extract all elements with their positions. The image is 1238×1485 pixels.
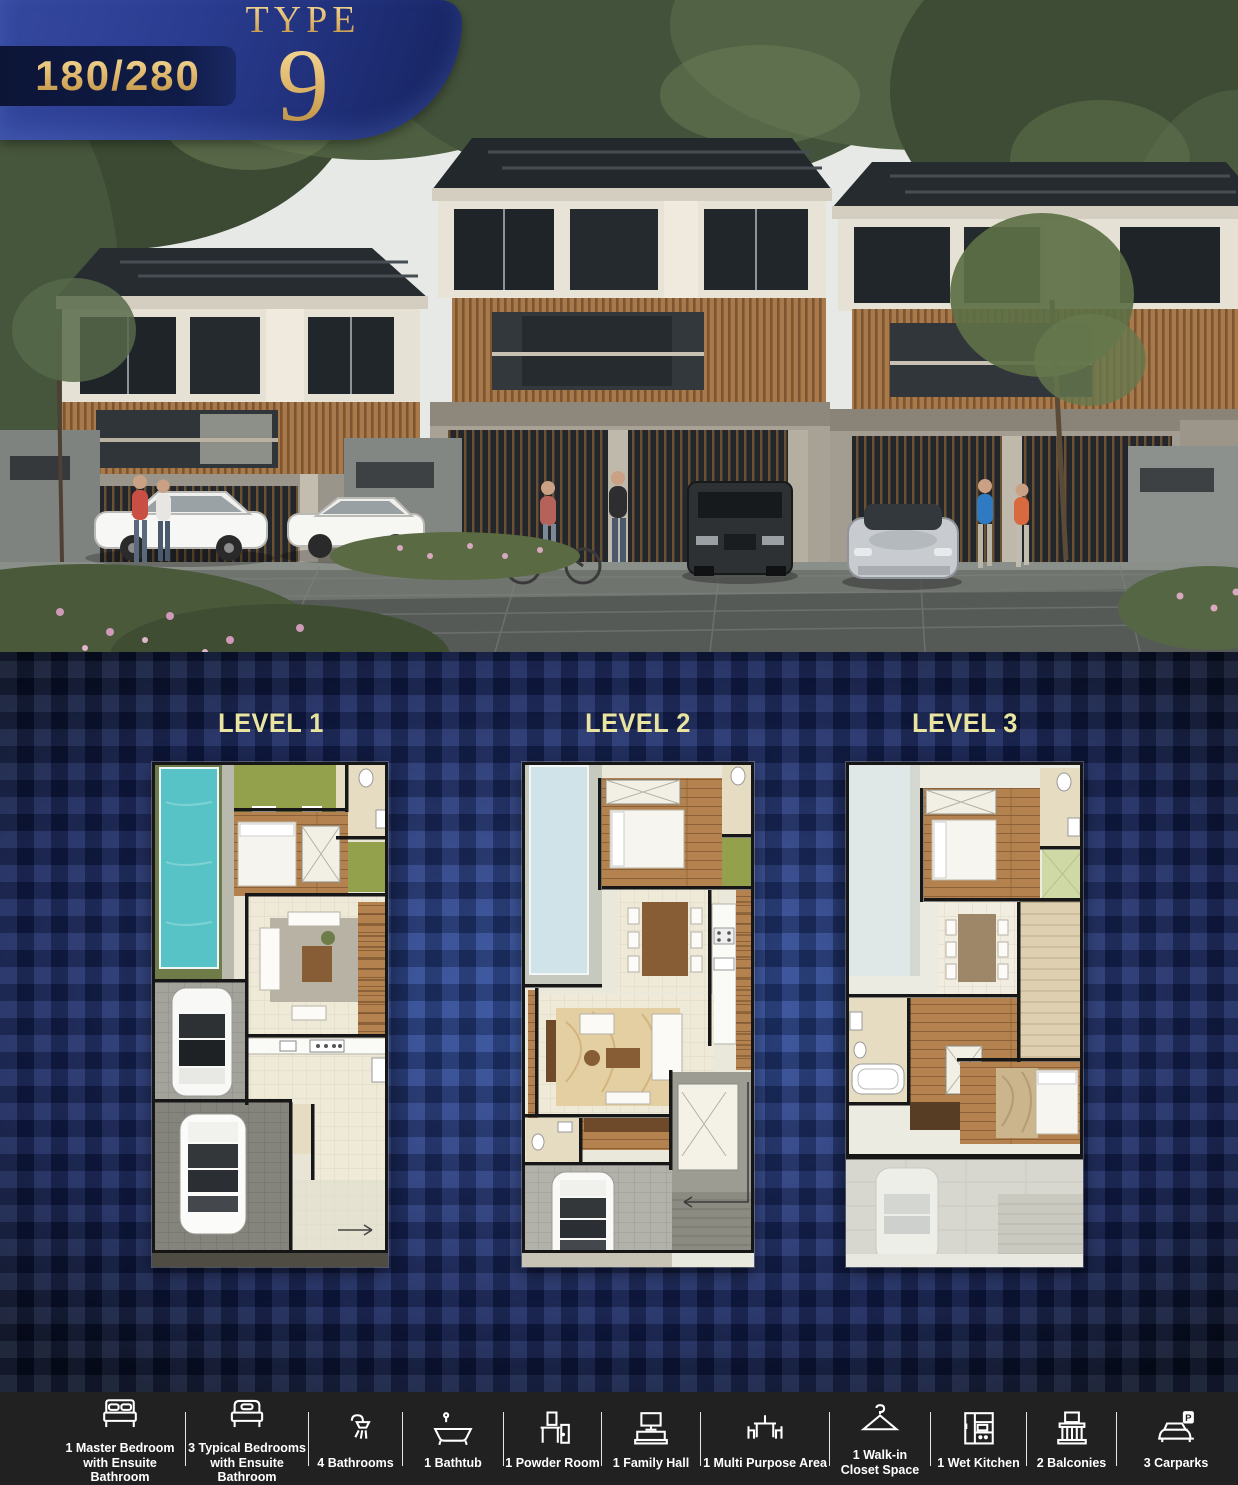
legend-label: 1 Family Hall [613, 1456, 689, 1471]
type-number: 9 [238, 38, 368, 134]
area-ratio-text: 180/280 [35, 52, 201, 100]
legend-balconies: 2 Balconies [1027, 1407, 1116, 1471]
legend-label: 3 Carparks [1144, 1456, 1209, 1471]
ghost-car [876, 1168, 938, 1262]
legend-wet-kitchen: 1 Wet Kitchen [931, 1407, 1026, 1471]
master-bed [1036, 1070, 1078, 1134]
legend-master-bedroom: 1 Master Bedroom with Ensuite Bathroom [55, 1392, 185, 1485]
floor-plan-level-1 [152, 762, 388, 1267]
legend-label: 1 Walk-in Closet Space [832, 1448, 928, 1478]
legend-footer: 1 Master Bedroom with Ensuite Bathroom 3… [0, 1392, 1238, 1485]
legend-walk-in-closet: 1 Walk-in Closet Space [830, 1399, 930, 1478]
legend-typical-bedrooms: 3 Typical Bedrooms with Ensuite Bathroom [186, 1392, 308, 1485]
single-bed-icon [225, 1392, 269, 1436]
pool [160, 768, 218, 968]
legend-label: 1 Master Bedroom with Ensuite Bathroom [57, 1441, 183, 1485]
legend-family-hall: 1 Family Hall [602, 1407, 700, 1471]
living-room [546, 1008, 682, 1106]
carport-car [172, 988, 232, 1096]
dining-table [628, 902, 702, 976]
type-badge: 180/280 TYPE 9 [0, 0, 462, 140]
floor-plans-section: LEVEL 1 LEVEL 2 LEVEL 3 [0, 652, 1238, 1392]
pool [530, 766, 588, 974]
legend-label: 1 Powder Room [505, 1456, 599, 1471]
legend-label: 1 Multi Purpose Area [703, 1456, 827, 1471]
floor-plan-level-2 [522, 762, 754, 1267]
brochure-page: 180/280 TYPE 9 LEVEL 1 LEVEL 2 LEVEL 3 [0, 0, 1238, 1485]
legend-carparks: P 3 Carparks [1117, 1407, 1235, 1471]
legend-powder-room: 1 Powder Room [504, 1407, 601, 1471]
legend-bathtub: 1 Bathtub [403, 1407, 503, 1471]
legend-label: 1 Bathtub [424, 1456, 482, 1471]
legend-label: 4 Bathrooms [317, 1456, 393, 1471]
legend-multi-purpose: 1 Multi Purpose Area [701, 1407, 829, 1471]
wet-kitchen-icon [957, 1407, 1001, 1451]
level-1-label: LEVEL 1 [218, 708, 324, 739]
level-2-label: LEVEL 2 [585, 708, 691, 739]
multi-purpose-icon [743, 1407, 787, 1451]
stairs [1020, 902, 1083, 1067]
legend-label: 1 Wet Kitchen [937, 1456, 1019, 1471]
dark-suv [682, 482, 798, 584]
shower-icon [334, 1407, 378, 1451]
walk-in-closet-icon [858, 1399, 902, 1443]
area-ratio-ribbon: 180/280 [0, 46, 236, 106]
floor-plan-level-3 [846, 762, 1083, 1267]
dining-table [946, 914, 1008, 982]
family-hall-icon [629, 1407, 673, 1451]
type-block: TYPE 9 [238, 0, 368, 133]
level-3-label: LEVEL 3 [912, 708, 1018, 739]
legend-label: 2 Balconies [1037, 1456, 1106, 1471]
driveway-car [180, 1114, 246, 1234]
carpark-sign-letter: P [1185, 1412, 1192, 1423]
carpark-icon: P [1154, 1407, 1198, 1451]
balcony-icon [1050, 1407, 1094, 1451]
powder-room-icon [531, 1407, 575, 1451]
legend-label: 3 Typical Bedrooms with Ensuite Bathroom [186, 1441, 308, 1485]
double-bed-icon [98, 1392, 142, 1436]
exterior-rendering: 180/280 TYPE 9 [0, 0, 1238, 652]
legend-bathrooms: 4 Bathrooms [309, 1407, 402, 1471]
bathtub-icon [431, 1407, 475, 1451]
